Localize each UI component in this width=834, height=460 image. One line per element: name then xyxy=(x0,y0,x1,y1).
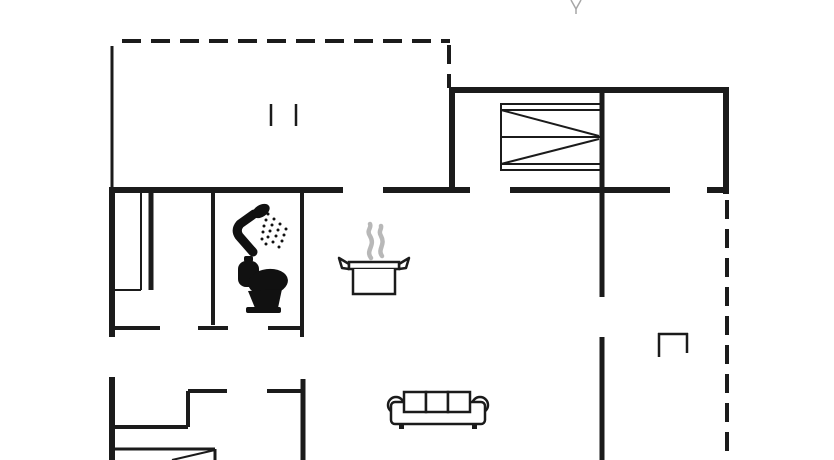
shower-icon xyxy=(237,201,287,252)
wall-segment xyxy=(172,450,215,460)
window-marks-icon xyxy=(271,104,296,126)
floorplan xyxy=(0,0,834,460)
wood-stove-icon xyxy=(658,333,688,357)
cooking-pot-icon xyxy=(339,224,409,294)
sofa-icon xyxy=(388,392,488,429)
floorplan-canvas xyxy=(0,0,834,460)
north-arrow-fragment-icon xyxy=(571,0,581,14)
bunk-bed-icon xyxy=(501,104,601,170)
toilet-icon xyxy=(238,256,289,313)
